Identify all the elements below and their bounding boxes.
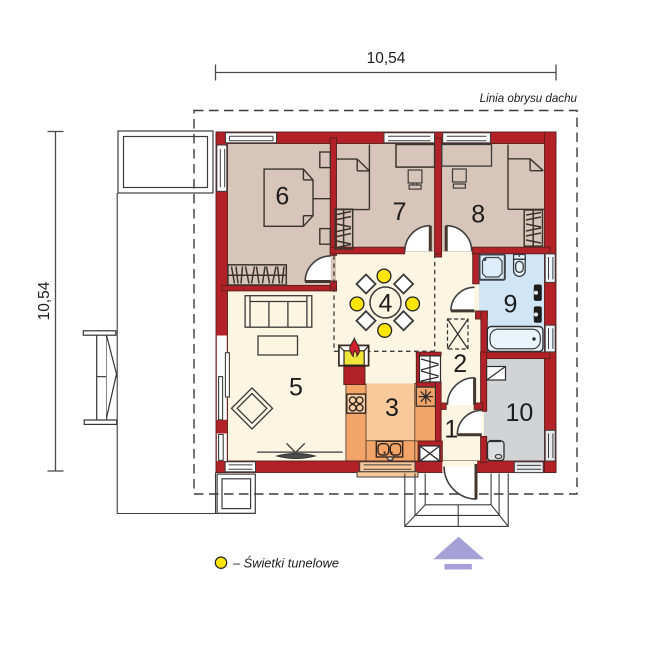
- svg-text:8: 8: [471, 201, 485, 229]
- svg-text:2: 2: [453, 350, 467, 378]
- svg-text:10,54: 10,54: [36, 281, 53, 320]
- svg-text:6: 6: [275, 183, 289, 211]
- svg-text:7: 7: [393, 198, 407, 226]
- svg-text:1: 1: [444, 416, 458, 444]
- svg-text:5: 5: [289, 374, 303, 402]
- svg-text:10,54: 10,54: [367, 50, 406, 67]
- svg-text:Linia obrysu dachu: Linia obrysu dachu: [480, 92, 578, 105]
- svg-text:9: 9: [504, 291, 518, 319]
- svg-text:4: 4: [379, 290, 393, 318]
- svg-text:3: 3: [385, 394, 399, 422]
- svg-text:– Świetki tunelowe: – Świetki tunelowe: [232, 556, 339, 571]
- svg-text:10: 10: [505, 399, 533, 427]
